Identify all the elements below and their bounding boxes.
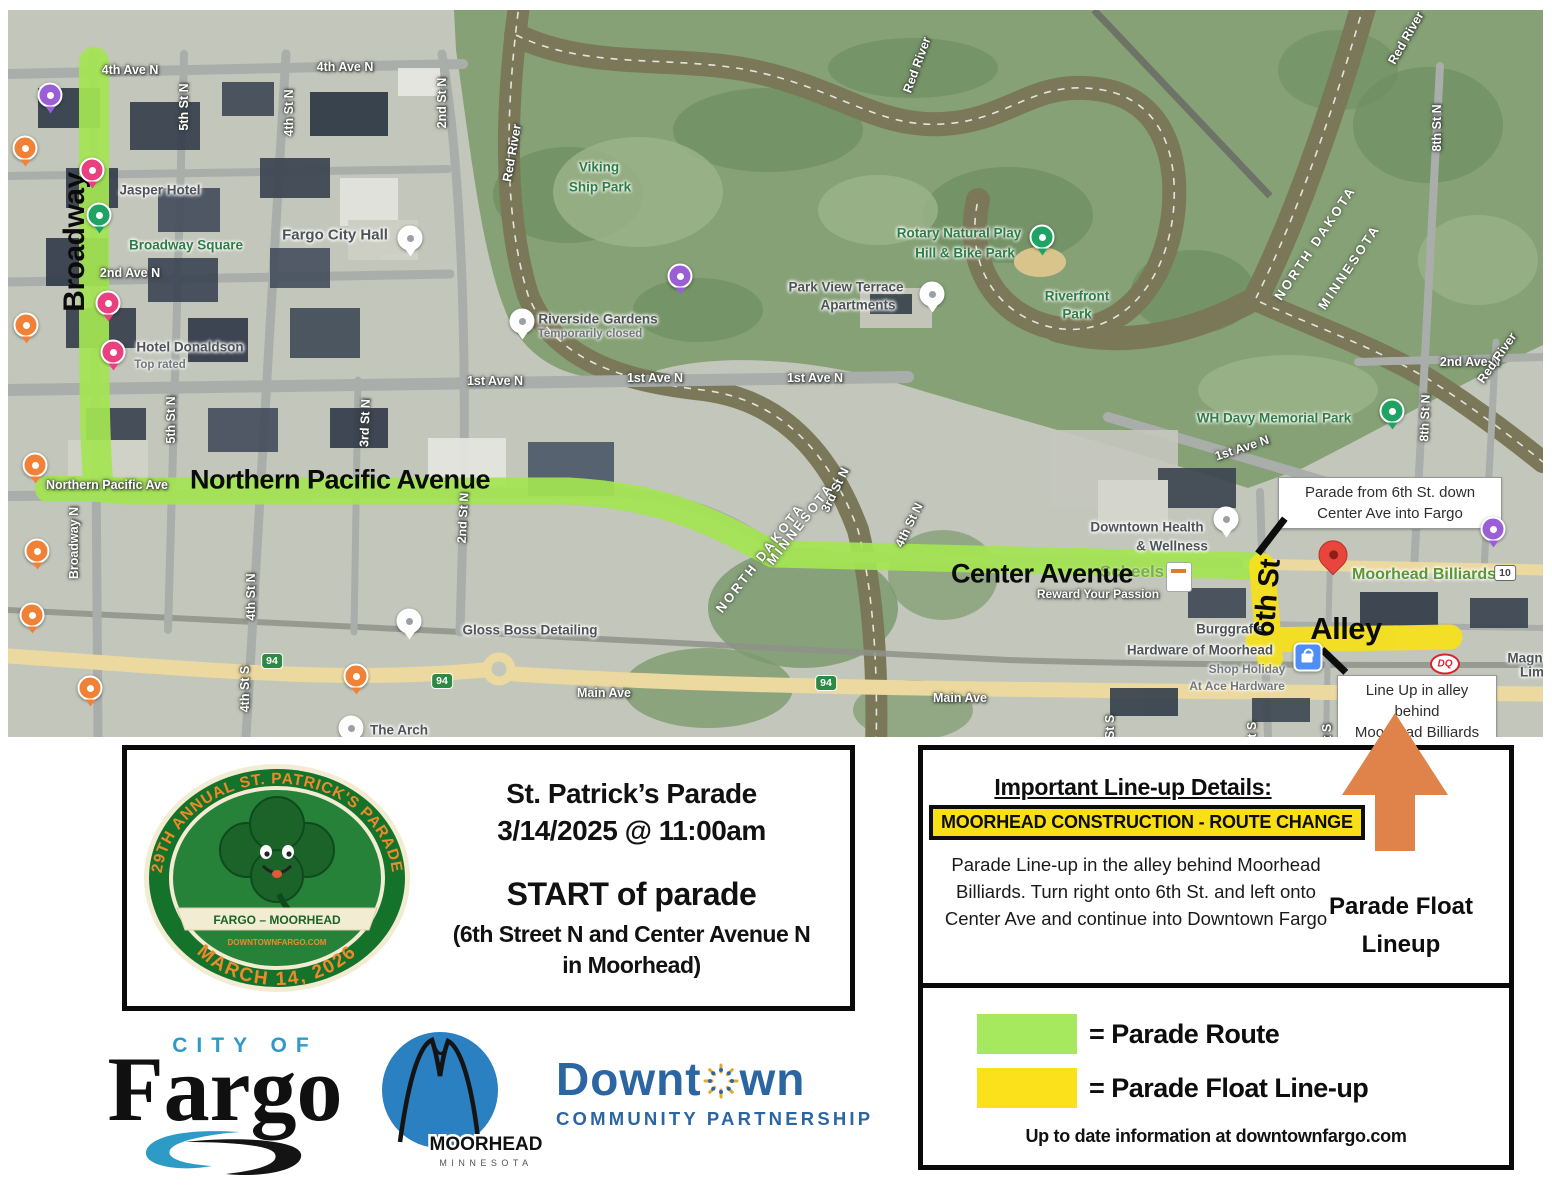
parade-route-swatch	[977, 1014, 1077, 1054]
dcp-subtitle: COMMUNITY PARTNERSHIP	[556, 1108, 886, 1130]
street-label: 5th St N	[177, 83, 191, 130]
float-lineup-swatch	[977, 1068, 1077, 1108]
highway-10-shield[interactable]: 10	[1494, 565, 1516, 581]
arrow-head-icon	[1342, 713, 1448, 795]
restaurant-pin[interactable]	[23, 453, 48, 478]
street-label: 4th Ave N	[102, 63, 159, 77]
street-label: 4th St N	[892, 501, 925, 550]
shopping-pin[interactable]	[1294, 643, 1323, 672]
parade-title: St. Patrick’s Parade	[427, 775, 836, 813]
route-label: 6th St	[1248, 558, 1288, 638]
seal-ribbon-text: FARGO – MOORHEAD	[213, 913, 341, 927]
street-label: Red River	[900, 35, 933, 95]
poi-label: Fargo City Hall	[282, 227, 388, 244]
parade-float-label-line1: Parade Float	[1321, 888, 1481, 926]
callout-connector-line	[1255, 516, 1287, 555]
poi-label: Riverside Gardens	[538, 312, 657, 327]
museum-pin[interactable]	[668, 264, 693, 289]
route-label: Center Avenue	[951, 559, 1133, 590]
lineup-instructions: Parade Line-up in the alley behind Moorh…	[931, 852, 1341, 932]
dcp-wordmark-part2: wn	[740, 1052, 806, 1106]
street-label: 2nd St N	[435, 78, 449, 129]
interstate-94-shield[interactable]: 94	[261, 653, 283, 669]
street-label: Northern Pacific Ave	[46, 478, 168, 492]
street-label: 3rd St N	[357, 399, 373, 447]
park-pin[interactable]	[87, 203, 112, 228]
poi-label: Gloss Boss Detailing	[462, 623, 597, 638]
restaurant-pin[interactable]	[14, 313, 39, 338]
downtown-community-partnership-logo: Downt wn COMMUNITY PARTNERSHIP	[556, 1052, 886, 1130]
poi-sublabel: At Ace Hardware	[1189, 679, 1285, 693]
scheels-store-marker[interactable]	[1166, 562, 1192, 592]
park-label: Ship Park	[569, 180, 631, 195]
dcp-wordmark-part1: Downt	[556, 1052, 702, 1106]
street-label: 4th St S	[238, 666, 252, 713]
poi-label: Apartments	[820, 298, 895, 313]
interstate-94-shield[interactable]: 94	[431, 673, 453, 689]
seal-site-text: DOWNTOWNFARGO.COM	[228, 938, 327, 947]
destination-pin-moorhead-billiards[interactable]	[1312, 534, 1353, 575]
parade-info-box: FARGO – MOORHEAD DOWNTOWNFARGO.COM 29TH …	[122, 745, 855, 1011]
street-label: 8th St N	[1417, 394, 1433, 442]
arrow-shaft	[1375, 795, 1415, 851]
city-of-fargo-logo: CITY OF Fargo	[90, 1024, 370, 1189]
restaurant-pin[interactable]	[78, 676, 103, 701]
parade-seal-logo: FARGO – MOORHEAD DOWNTOWNFARGO.COM 29TH …	[127, 760, 427, 996]
map-callout: Parade from 6th St. downCenter Ave into …	[1278, 477, 1502, 529]
restaurant-pin[interactable]	[20, 603, 45, 628]
poi-pin[interactable]	[920, 282, 945, 307]
route-label: Alley	[1310, 611, 1382, 647]
park-label: Viking	[579, 160, 619, 175]
hotel-pin[interactable]	[80, 158, 105, 183]
poi-label: Magn	[1507, 651, 1542, 666]
poi-pin[interactable]	[398, 226, 423, 251]
street-label: Main Ave	[933, 691, 987, 705]
poi-sublabel: Top rated	[134, 359, 186, 371]
street-label: 1st Ave N	[467, 374, 523, 388]
hotel-pin[interactable]	[96, 291, 121, 316]
parade-route-legend-label: = Parade Route	[1089, 1019, 1279, 1050]
street-label: 4th St N	[282, 89, 296, 136]
place-label: Moorhead Billiards	[1352, 566, 1496, 584]
park-label: Rotary Natural Play	[897, 226, 1022, 241]
moorhead-wordmark: MOORHEAD	[430, 1134, 543, 1155]
restaurant-pin[interactable]	[344, 664, 369, 689]
fargo-wordmark: Fargo	[107, 1038, 342, 1140]
float-lineup-legend-label: = Parade Float Line-up	[1089, 1073, 1368, 1104]
street-label: 7th St S	[1320, 724, 1334, 737]
park-label: Riverfront	[1045, 289, 1110, 304]
park-label: WH Davy Memorial Park	[1197, 411, 1352, 426]
street-label: Broadway N	[67, 507, 81, 579]
lineup-details-title: Important Line-up Details:	[923, 774, 1343, 801]
route-label: Northern Pacific Avenue	[190, 465, 490, 496]
poi-label: Lim	[1520, 665, 1543, 680]
poi-pin[interactable]	[510, 309, 535, 334]
state-boundary-label: NORTH DAKOTA	[713, 500, 808, 615]
poi-pin[interactable]	[1214, 507, 1239, 532]
poi-pin[interactable]	[339, 716, 364, 738]
state-boundary-label: MINNESOTA	[763, 480, 836, 568]
park-label: Broadway Square	[129, 238, 243, 253]
legend-footer: Up to date information at downtownfargo.…	[923, 1126, 1509, 1147]
map-labels-layer: 4th Ave N4th Ave N2nd Ave N2nd Ave N1st …	[8, 10, 1543, 737]
callout-connector-line	[1320, 646, 1349, 674]
parade-float-lineup-arrow	[1342, 713, 1448, 851]
street-label: 6th St S	[1245, 722, 1259, 737]
hotel-pin[interactable]	[101, 340, 126, 365]
museum-pin[interactable]	[1481, 517, 1506, 542]
street-label: Red River	[500, 123, 524, 183]
park-pin[interactable]	[1030, 225, 1055, 250]
poi-label: Park View Terrace	[788, 280, 903, 295]
street-label: 1st Ave N	[1213, 433, 1271, 464]
fargo-river-swoosh-black	[185, 1139, 301, 1175]
poi-label: The Arch	[370, 723, 428, 738]
street-label: 4th St N	[244, 573, 258, 620]
callout-line: Parade from 6th St. down	[1284, 482, 1496, 503]
parade-float-label-line2: Lineup	[1321, 926, 1481, 964]
street-label: 1st Ave N	[627, 371, 683, 385]
poi-sublabel: Shop Holiday	[1209, 662, 1286, 676]
park-pin[interactable]	[1380, 399, 1405, 424]
start-of-parade-label: START of parade	[427, 876, 836, 913]
street-label: 5th St S	[1103, 715, 1117, 737]
start-location-line2: in Moorhead)	[427, 950, 836, 981]
route-change-badge: MOORHEAD CONSTRUCTION - ROUTE CHANGE	[929, 805, 1365, 840]
legend-box: = Parade Route = Parade Float Line-up Up…	[918, 983, 1514, 1170]
restaurant-pin[interactable]	[25, 539, 50, 564]
moorhead-state-text: MINNESOTA	[439, 1158, 532, 1168]
moorhead-logo: MOORHEAD MINNESOTA	[368, 1028, 553, 1181]
poi-label: Hardware of Moorhead	[1127, 643, 1273, 658]
parade-info-text: St. Patrick’s Parade 3/14/2025 @ 11:00am…	[427, 775, 850, 982]
poi-label: & Wellness	[1136, 539, 1208, 554]
street-label: 8th St N	[1430, 104, 1444, 151]
street-label: 5th St N	[164, 396, 178, 443]
parade-datetime: 3/14/2025 @ 11:00am	[427, 812, 836, 850]
start-location-line1: (6th Street N and Center Avenue N	[427, 919, 836, 950]
dcp-sunburst-o-icon	[703, 1063, 739, 1099]
street-label: 4th Ave N	[317, 60, 374, 74]
street-label: Red River	[1385, 10, 1426, 67]
interstate-94-shield[interactable]: 94	[815, 675, 837, 691]
dairy-queen-logo-pin[interactable]: DQ	[1430, 654, 1460, 675]
museum-pin[interactable]	[38, 83, 63, 108]
park-label: Hill & Bike Park	[915, 246, 1015, 261]
poi-label: Hotel Donaldson	[136, 340, 243, 355]
street-label: 2nd St N	[455, 492, 472, 543]
street-label: 2nd Ave N	[100, 266, 160, 280]
poi-pin[interactable]	[397, 609, 422, 634]
map: 4th Ave N4th Ave N2nd Ave N2nd Ave N1st …	[8, 10, 1543, 737]
parade-route-flyer: 4th Ave N4th Ave N2nd Ave N2nd Ave N1st …	[0, 0, 1552, 1200]
street-label: Main Ave	[577, 686, 631, 700]
restaurant-pin[interactable]	[13, 136, 38, 161]
poi-label: Jasper Hotel	[119, 183, 200, 198]
street-label: 1st Ave N	[787, 371, 843, 385]
poi-label: Downtown Health	[1090, 520, 1203, 535]
callout-line: Center Ave into Fargo	[1284, 503, 1496, 524]
poi-sublabel: Temporarily closed	[538, 328, 643, 340]
park-label: Park	[1062, 307, 1091, 322]
